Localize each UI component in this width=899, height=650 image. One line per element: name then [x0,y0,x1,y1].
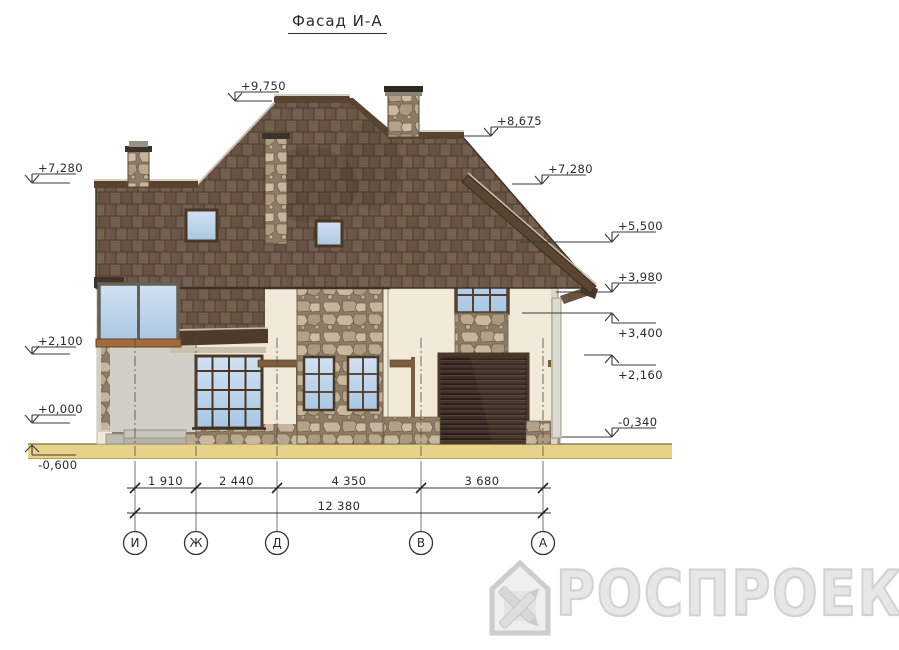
chimney-stone-strip [262,133,290,244]
window-small-left [304,357,334,410]
dimension-value: 3 680 [421,474,543,488]
garage-door [439,354,528,443]
chimney-main [384,86,423,137]
timber-band [258,360,300,367]
drawing-title: Фасад И-А [288,12,387,34]
ground-strip [28,444,672,459]
chimney-small [125,141,152,187]
elevation-mark: +5,500 [618,219,663,233]
elevation-mark: +2,100 [38,334,83,348]
facade-canvas [0,0,899,650]
elevation-mark: +0,000 [38,402,83,416]
elevation-mark: +7,280 [38,161,83,175]
stone-apron [455,313,508,354]
elevation-mark: +3,400 [618,326,663,340]
elevation-mark: +7,280 [548,162,593,176]
dimension-total: 12 380 [135,499,543,513]
balcony-glazing [94,277,181,347]
elevation-mark: +8,675 [497,114,542,128]
axis-label: А [536,536,550,550]
axis-label: Д [270,536,284,550]
facade-drawing-sheet: РОСПРОЕКТ [0,0,899,650]
elevation-mark: -0,340 [618,415,657,429]
skylight-right [316,221,342,246]
axis-label: В [414,536,428,550]
elevation-mark: -0,600 [38,458,77,472]
downspout [552,283,598,438]
elevation-mark: +9,750 [241,79,286,93]
skylight-left [186,210,217,241]
dimension-value: 4 350 [277,474,421,488]
stone-pier [297,287,383,444]
axis-label: И [128,536,142,550]
window-large [192,356,266,429]
window-small-right [348,357,378,410]
dimension-value: 1 910 [135,474,196,488]
dimension-value: 2 440 [196,474,277,488]
elevation-mark: +3,980 [618,270,663,284]
elevation-mark: +2,160 [618,368,663,382]
axis-label: Ж [189,536,203,550]
porch-wall [97,344,196,432]
